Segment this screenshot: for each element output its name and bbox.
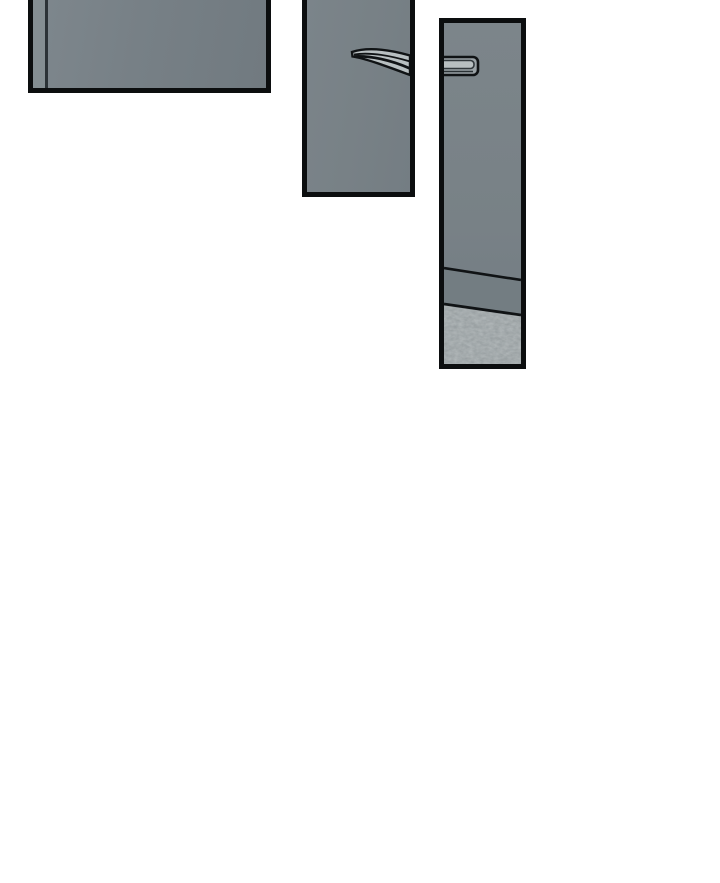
door-floor-graphic — [444, 23, 521, 364]
door-edge-highlight — [33, 0, 45, 88]
door-handle-graphic — [307, 0, 410, 192]
comic-panel-door-and-floor — [439, 18, 526, 369]
door-handle-icon — [444, 57, 478, 75]
comic-panel-door-closeup — [28, 0, 271, 93]
door-seam-line — [45, 0, 48, 88]
webtoon-page — [0, 0, 720, 883]
comic-panel-door-with-handle — [302, 0, 415, 197]
